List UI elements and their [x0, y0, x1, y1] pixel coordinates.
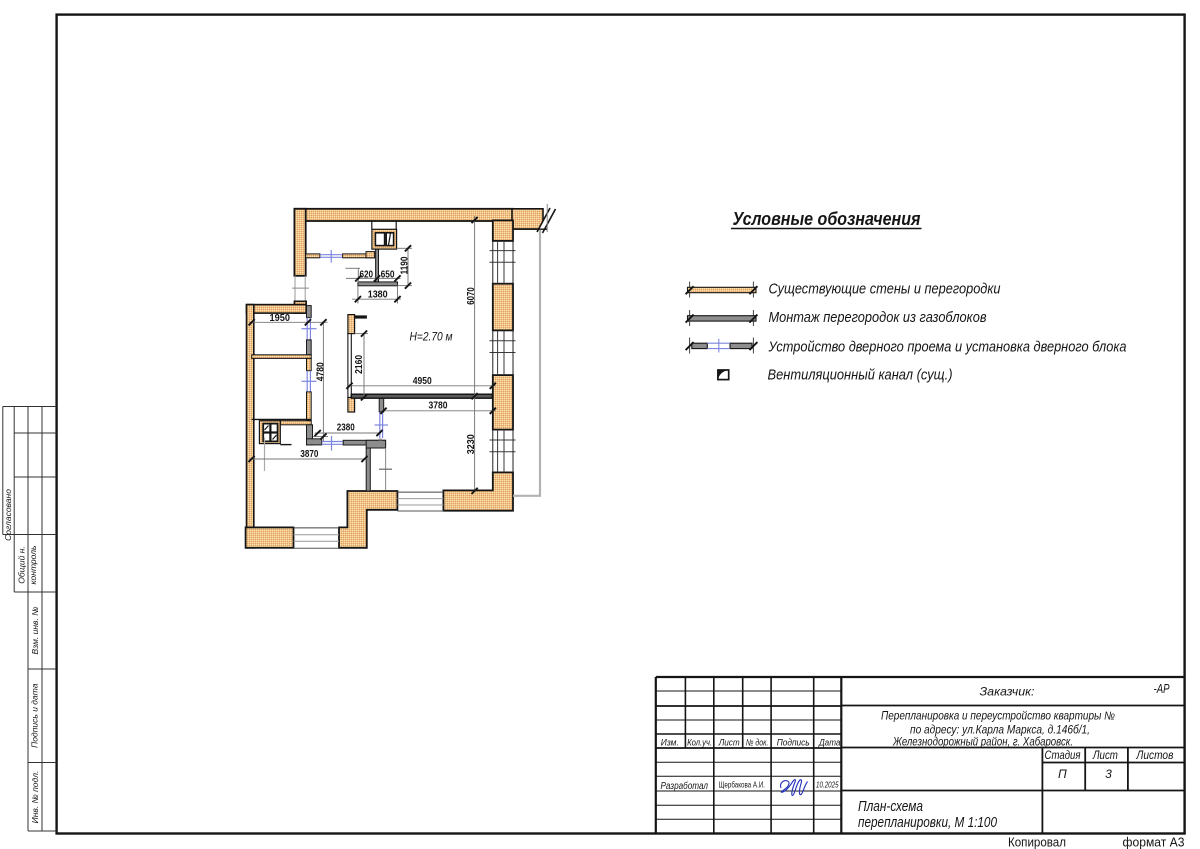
svg-text:П: П: [1058, 767, 1067, 781]
svg-text:Устройство дверного проема и у: Устройство дверного проема и установка д…: [768, 340, 1127, 356]
svg-text:перепланировки, М 1:100: перепланировки, М 1:100: [858, 815, 997, 831]
svg-text:Согласовано: Согласовано: [3, 489, 13, 541]
svg-text:3230: 3230: [466, 434, 477, 454]
svg-text:Разработал: Разработал: [661, 780, 709, 792]
svg-text:Заказчик:: Заказчик:: [980, 685, 1035, 699]
svg-text:Лист: Лист: [718, 738, 740, 748]
svg-text:Щербакова А.И.: Щербакова А.И.: [719, 780, 766, 790]
svg-text:План-схема: План-схема: [858, 799, 923, 815]
svg-text:Подпись: Подпись: [777, 738, 810, 748]
svg-text:Существующие стены и перегород: Существующие стены и перегородки: [769, 282, 1001, 298]
svg-text:4780: 4780: [316, 362, 327, 381]
svg-text:формат А3: формат А3: [1123, 835, 1185, 849]
svg-text:Дата: Дата: [818, 738, 840, 748]
svg-text:650: 650: [381, 269, 395, 280]
svg-text:3780: 3780: [429, 400, 448, 411]
svg-text:контроль: контроль: [28, 546, 38, 585]
svg-text:2380: 2380: [337, 423, 355, 434]
svg-text:Общий н.: Общий н.: [16, 546, 26, 583]
svg-text:Монтаж перегородок из газоблок: Монтаж перегородок из газоблоков: [769, 310, 987, 326]
svg-text:Инв. № подл.: Инв. № подл.: [30, 771, 40, 824]
svg-text:Подпись и дата: Подпись и дата: [30, 683, 40, 748]
svg-text:Железнодорожный район, г. Хаба: Железнодорожный район, г. Хабаровск.: [892, 737, 1073, 749]
svg-text:Вентиляционный канал (сущ.): Вентиляционный канал (сущ.): [768, 368, 953, 384]
svg-text:3870: 3870: [300, 449, 318, 460]
svg-text:по адресу: ул.Карла Маркса, д.: по адресу: ул.Карла Маркса, д.146б/1,: [910, 725, 1090, 737]
svg-text:Взм. инв. №: Взм. инв. №: [30, 607, 40, 655]
svg-text:1950: 1950: [270, 313, 291, 324]
svg-text:1190: 1190: [399, 256, 410, 274]
svg-text:H=2.70 м: H=2.70 м: [410, 330, 453, 344]
svg-text:3: 3: [1105, 767, 1112, 781]
svg-text:1380: 1380: [368, 290, 388, 301]
svg-text:Копировал: Копировал: [1008, 835, 1066, 849]
svg-text:Перепланировка и переустройств: Перепланировка и переустройство квартиры…: [881, 711, 1115, 723]
svg-text:Кол.уч.: Кол.уч.: [687, 738, 712, 748]
svg-text:2160: 2160: [354, 355, 365, 374]
svg-text:Условные обозначения: Условные обозначения: [733, 208, 921, 229]
svg-text:Лист: Лист: [1092, 748, 1118, 762]
svg-text:Листов: Листов: [1136, 748, 1174, 762]
svg-text:Стадия: Стадия: [1045, 748, 1081, 762]
svg-text:№ док.: № док.: [746, 738, 769, 748]
svg-text:-АР: -АР: [1154, 682, 1171, 696]
svg-text:4950: 4950: [413, 376, 432, 387]
svg-text:620: 620: [359, 269, 373, 280]
svg-text:6070: 6070: [466, 287, 477, 305]
svg-text:Изм.: Изм.: [661, 738, 679, 748]
svg-text:10.2025: 10.2025: [816, 780, 839, 790]
